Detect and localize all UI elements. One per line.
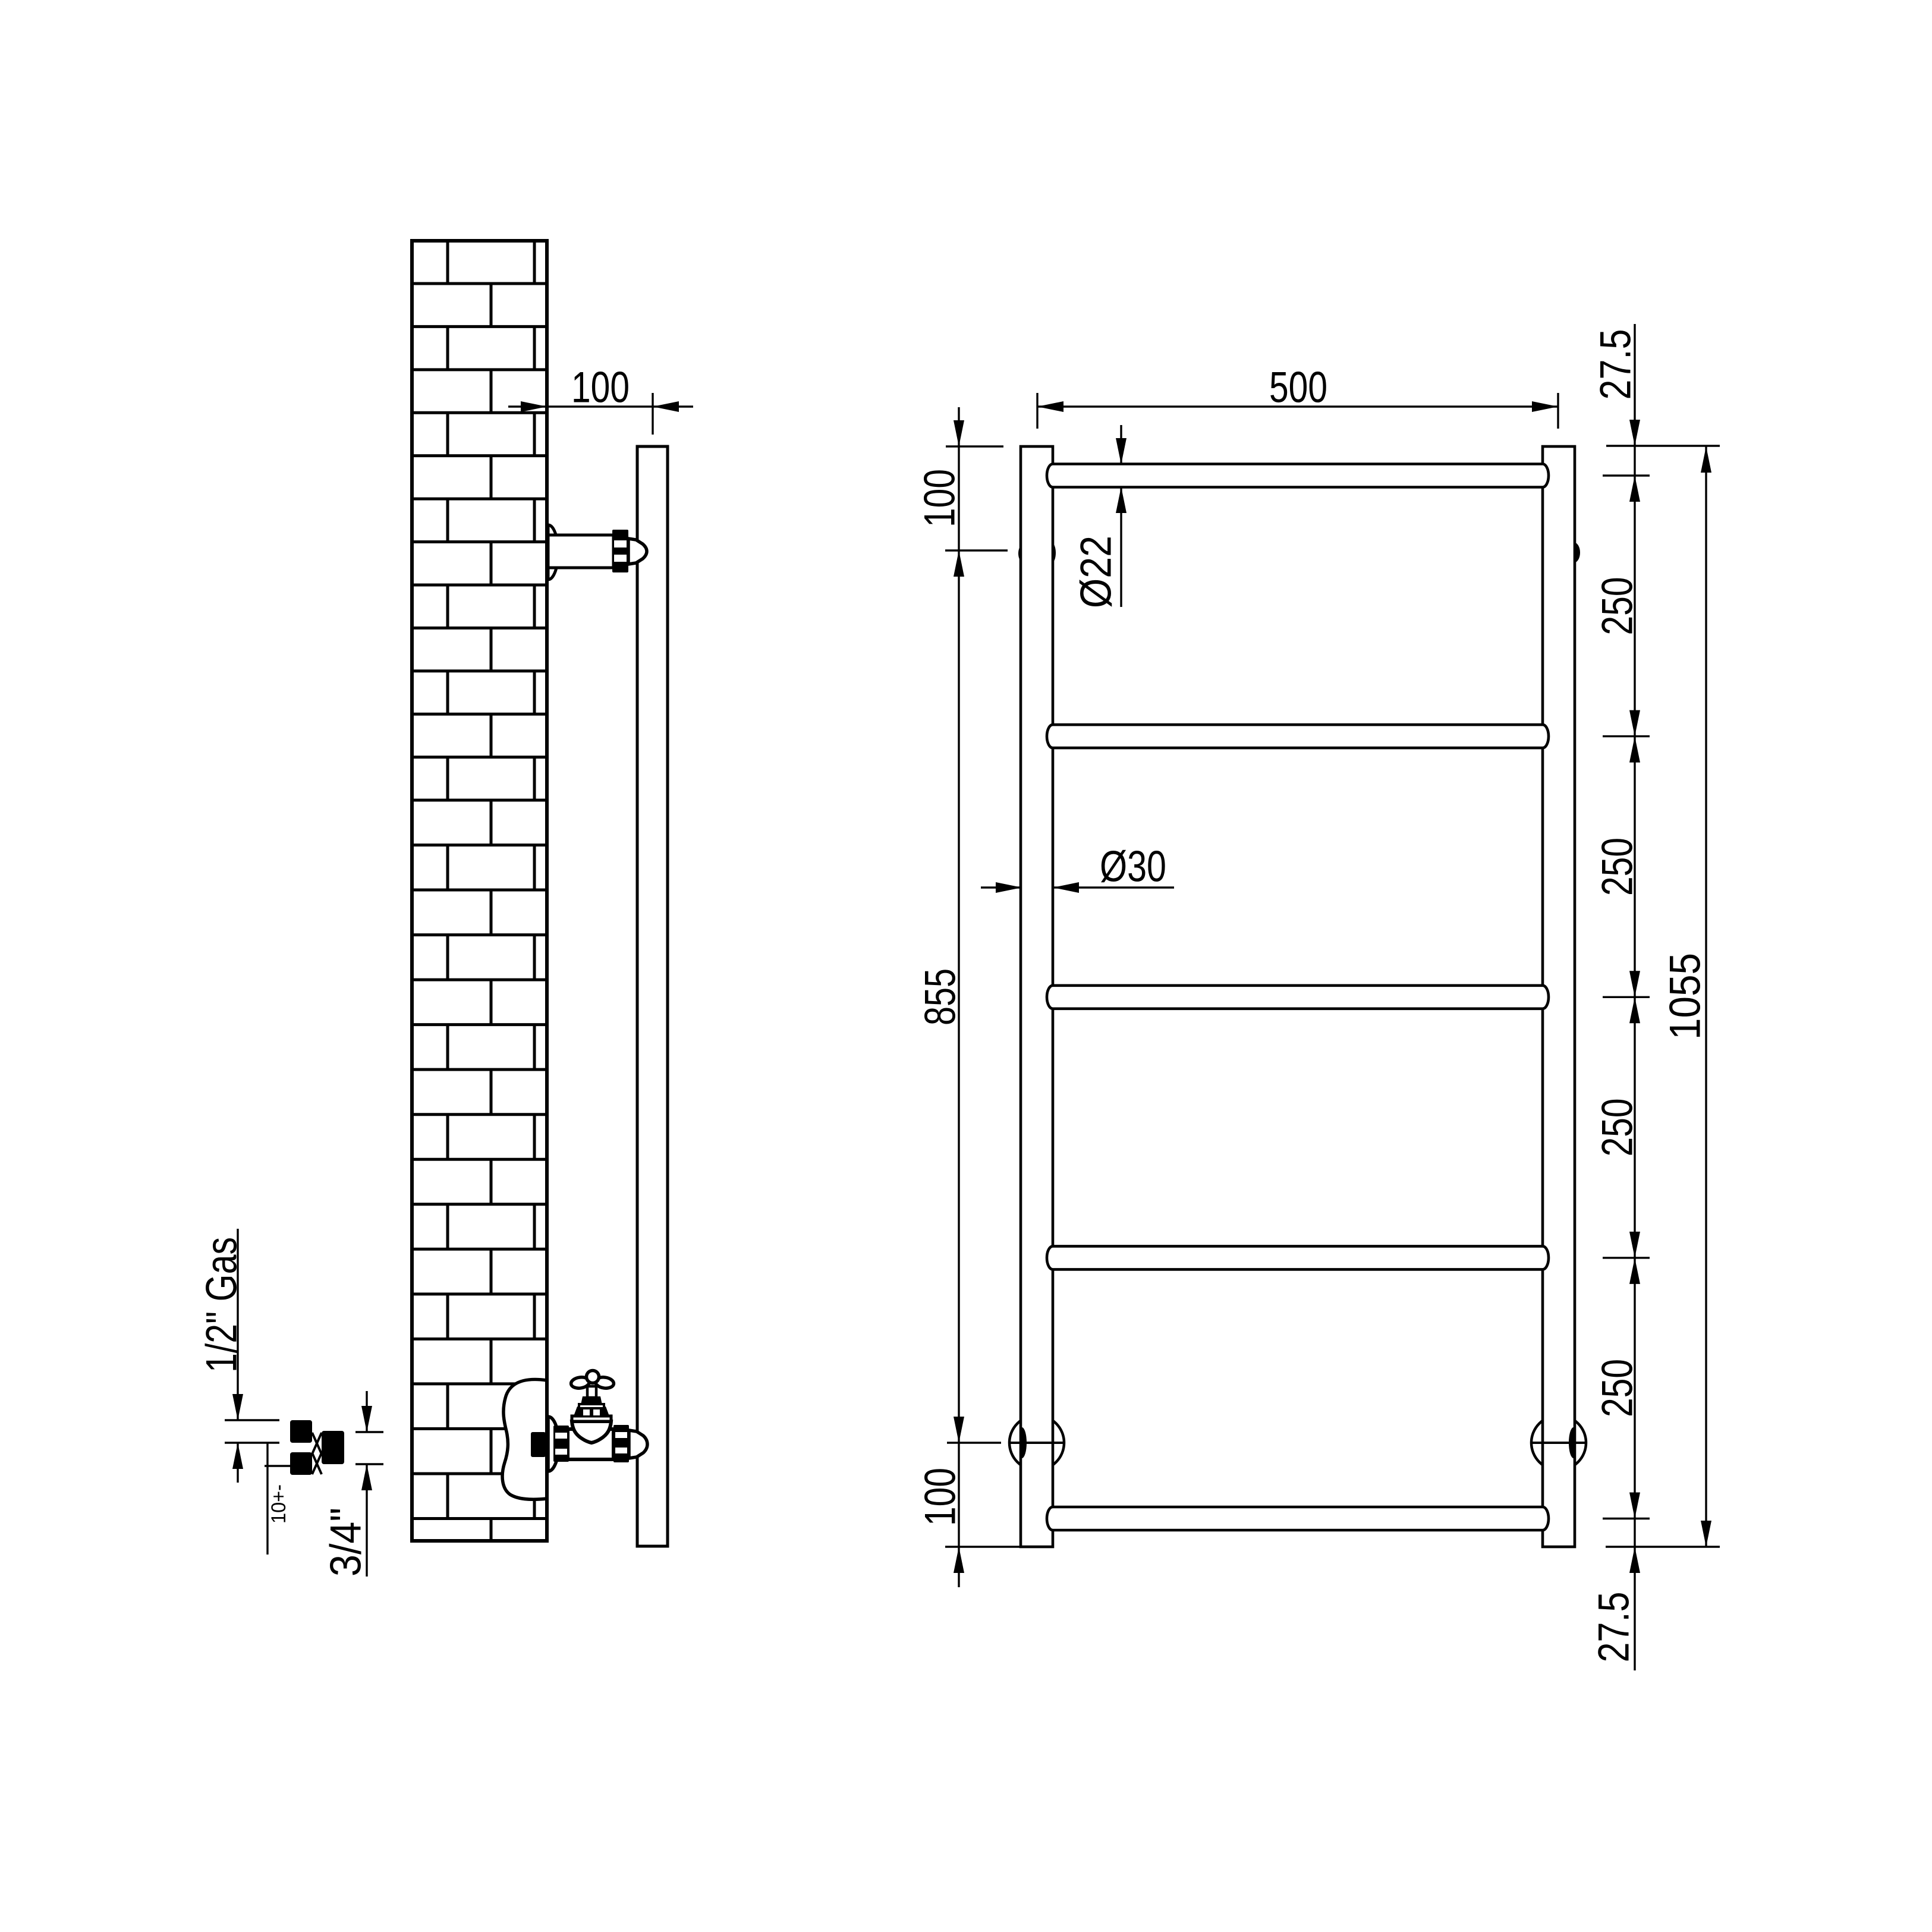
svg-text:27.5: 27.5 (1592, 329, 1640, 400)
svg-text:250: 250 (1594, 577, 1642, 635)
svg-text:1/2" Gas: 1/2" Gas (198, 1237, 246, 1373)
svg-text:10+-: 10+- (268, 1484, 290, 1524)
svg-text:Ø22: Ø22 (1072, 536, 1121, 608)
svg-text:500: 500 (1269, 364, 1327, 412)
svg-text:100: 100 (916, 469, 964, 527)
svg-text:1055: 1055 (1662, 953, 1710, 1040)
svg-text:Ø30: Ø30 (1100, 843, 1166, 891)
svg-text:27.5: 27.5 (1590, 1592, 1638, 1663)
svg-text:250: 250 (1594, 1359, 1642, 1417)
svg-text:250: 250 (1594, 1099, 1642, 1157)
svg-text:100: 100 (917, 1468, 965, 1526)
svg-text:250: 250 (1594, 838, 1642, 896)
svg-text:855: 855 (917, 968, 965, 1025)
svg-text:3/4": 3/4" (322, 1508, 370, 1577)
svg-text:100: 100 (571, 364, 630, 412)
